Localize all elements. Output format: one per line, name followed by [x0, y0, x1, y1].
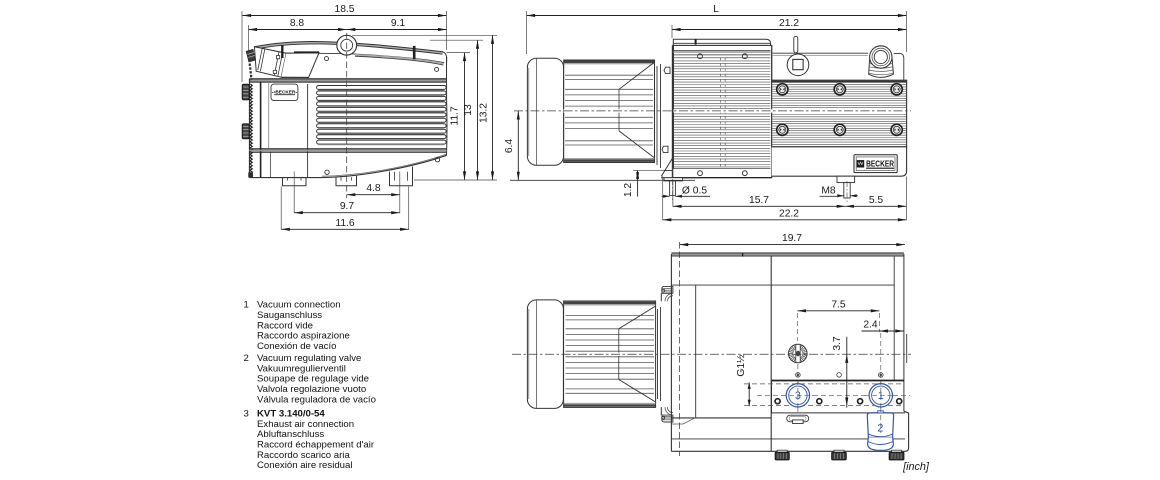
svg-text:Vakuumregulierventil: Vakuumregulierventil: [257, 363, 346, 374]
svg-text:L: L: [713, 4, 719, 15]
svg-text:KVT 3.140/0-54: KVT 3.140/0-54: [257, 408, 325, 419]
svg-text:4.8: 4.8: [366, 183, 381, 194]
svg-text:3: 3: [244, 408, 249, 419]
svg-text:1: 1: [878, 390, 884, 402]
svg-text:11.6: 11.6: [335, 218, 355, 229]
svg-text:Raccordo aspirazione: Raccordo aspirazione: [257, 331, 350, 342]
svg-text:5.5: 5.5: [869, 195, 884, 206]
svg-text:Valvola regolazione vuoto: Valvola regolazione vuoto: [257, 384, 366, 395]
svg-text:Raccord échappement d'air: Raccord échappement d'air: [257, 439, 375, 450]
svg-text:6.4: 6.4: [504, 139, 515, 154]
svg-text:3.7: 3.7: [832, 336, 843, 351]
svg-text:2.4: 2.4: [863, 319, 878, 330]
svg-text:G1½: G1½: [736, 354, 747, 377]
svg-text:2: 2: [877, 422, 883, 434]
svg-text:Conexión de vacío: Conexión de vacío: [257, 341, 336, 352]
svg-text:Abluftanschluss: Abluftanschluss: [257, 429, 324, 440]
svg-text:1.2: 1.2: [623, 183, 634, 198]
svg-text:Sauganschluss: Sauganschluss: [257, 310, 322, 321]
svg-text:Exhaust air connection: Exhaust air connection: [257, 419, 354, 430]
svg-text:1: 1: [244, 300, 249, 311]
svg-text:▪BECKER: ▪BECKER: [274, 89, 296, 94]
svg-text:21.2: 21.2: [779, 18, 799, 29]
svg-text:Válvula reguladora de vacío: Válvula reguladora de vacío: [257, 394, 376, 405]
svg-text:2: 2: [244, 353, 249, 364]
svg-text:18.5: 18.5: [334, 4, 354, 15]
svg-text:22.2: 22.2: [779, 209, 799, 220]
svg-text:11.7: 11.7: [450, 106, 461, 126]
svg-text:Vacuum connection: Vacuum connection: [257, 300, 341, 311]
svg-text:13.2: 13.2: [479, 103, 490, 123]
svg-text:Raccordo scarico aria: Raccordo scarico aria: [257, 450, 350, 461]
svg-text:Ø 0.5: Ø 0.5: [682, 186, 707, 197]
svg-text:Raccord vide: Raccord vide: [257, 320, 313, 331]
svg-text:8.8: 8.8: [290, 18, 305, 29]
svg-text:13: 13: [463, 104, 474, 116]
svg-text:7.5: 7.5: [831, 299, 846, 310]
svg-text:19.7: 19.7: [782, 233, 802, 244]
svg-text:3: 3: [795, 390, 801, 402]
svg-text:Conexión aire residual: Conexión aire residual: [257, 460, 352, 471]
svg-text:[inch]: [inch]: [902, 461, 930, 473]
svg-text:M8: M8: [821, 186, 836, 197]
svg-text:9.1: 9.1: [391, 18, 406, 29]
svg-text:BECKER: BECKER: [866, 159, 895, 169]
svg-text:15.7: 15.7: [749, 195, 769, 206]
svg-text:Vacuum regulating valve: Vacuum regulating valve: [257, 353, 361, 364]
svg-text:Soupape de regulage vide: Soupape de regulage vide: [257, 374, 369, 385]
svg-text:9.7: 9.7: [340, 201, 355, 212]
